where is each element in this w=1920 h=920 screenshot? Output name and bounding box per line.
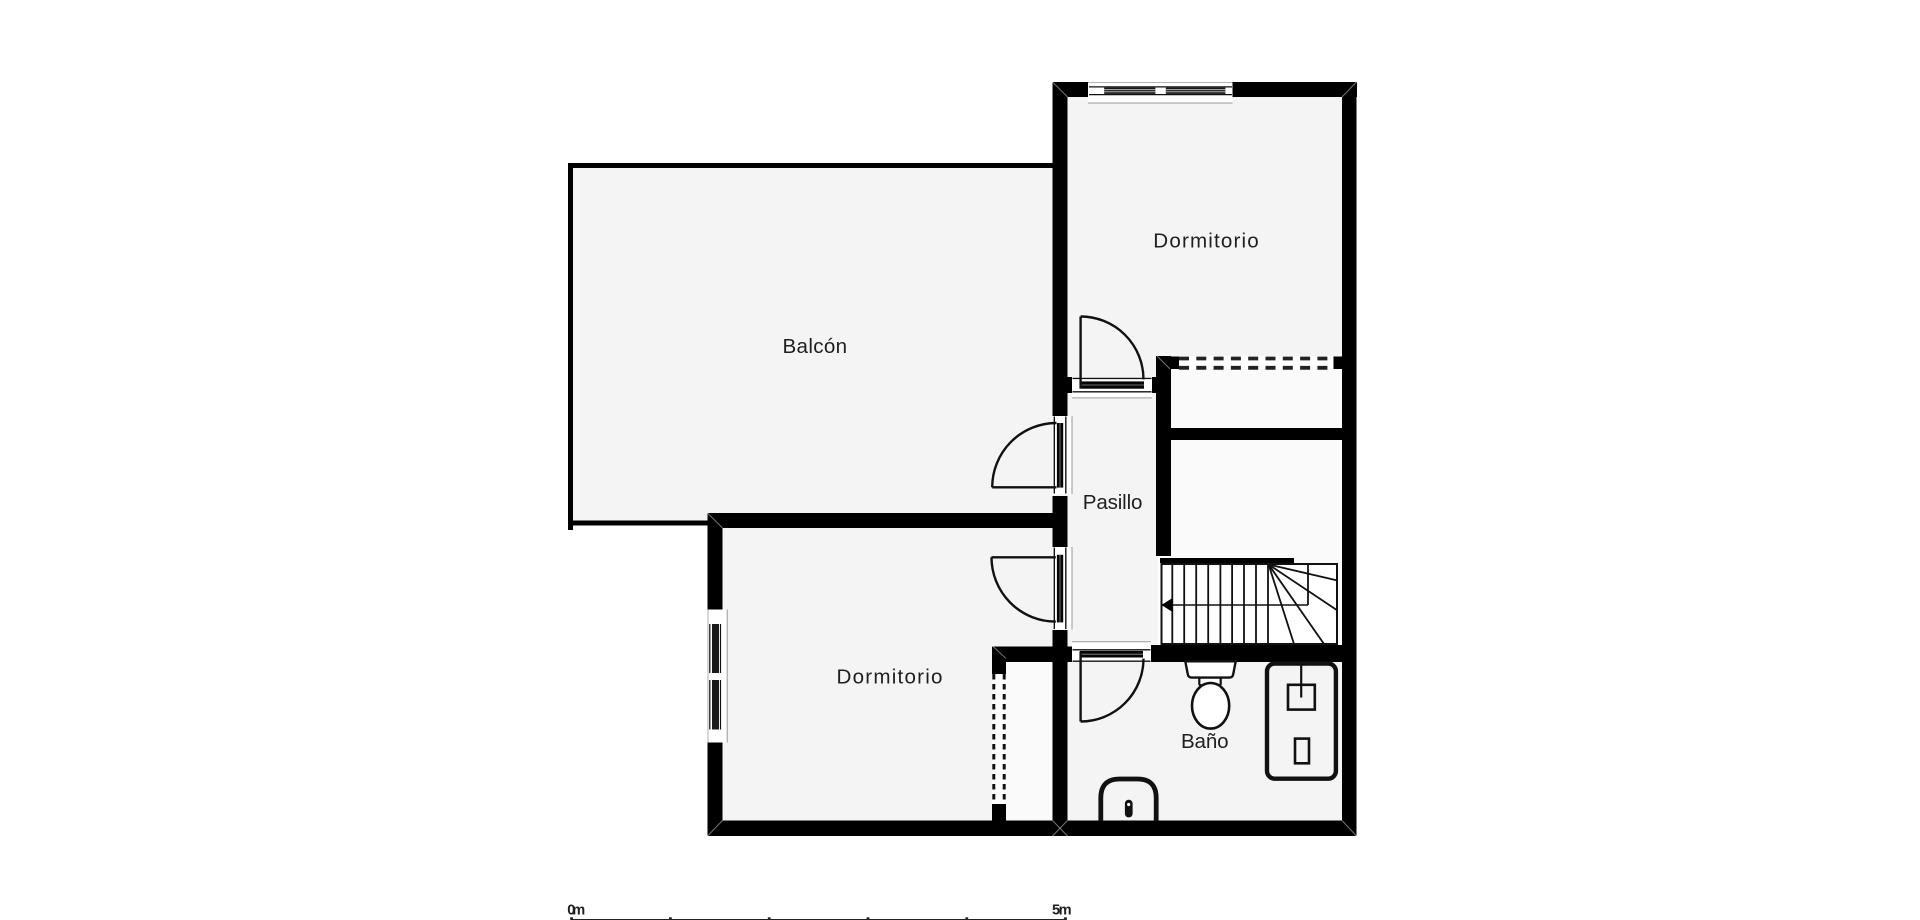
svg-text:Dormitorio: Dormitorio xyxy=(1153,230,1258,253)
svg-text:0m: 0m xyxy=(567,902,585,918)
svg-text:5m: 5m xyxy=(1052,902,1072,918)
svg-text:Dormitorio: Dormitorio xyxy=(837,666,943,689)
svg-text:Pasillo: Pasillo xyxy=(1083,491,1143,514)
svg-text:Baño: Baño xyxy=(1181,730,1229,753)
svg-text:Balcón: Balcón xyxy=(782,335,847,358)
